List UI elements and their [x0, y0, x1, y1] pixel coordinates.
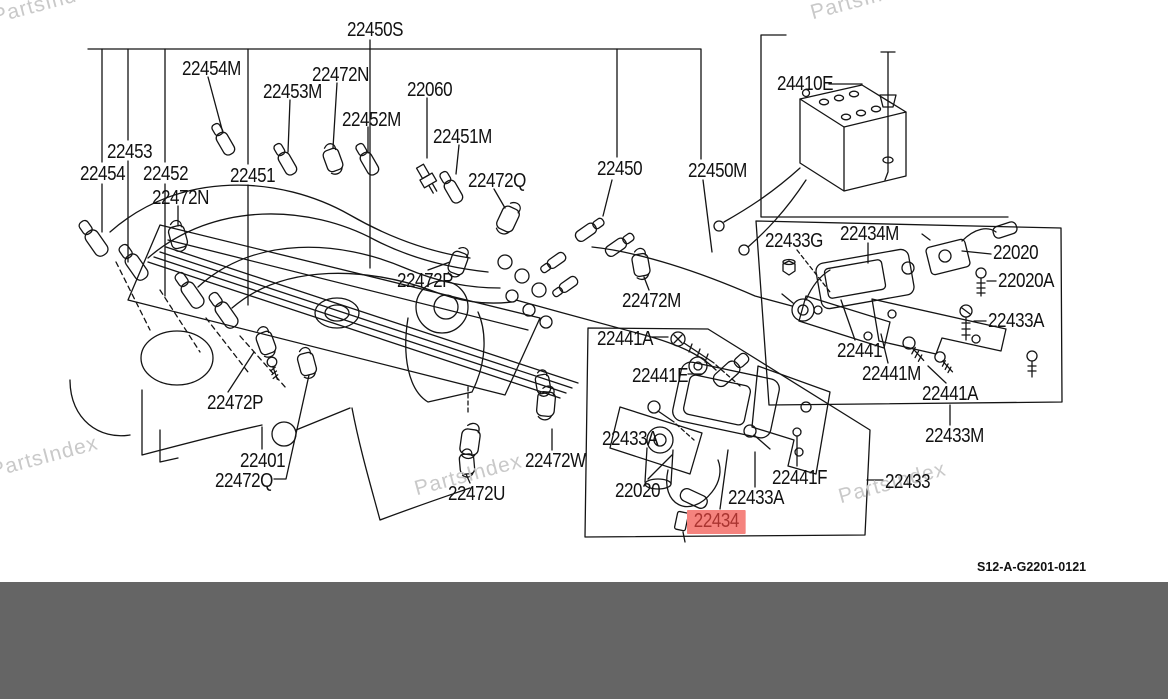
- part-label-22472W-31[interactable]: 22472W: [525, 451, 586, 472]
- part-label-24410E-15[interactable]: 24410E: [777, 74, 833, 95]
- part-label-22433M-29[interactable]: 22433M: [925, 426, 984, 447]
- parts-catalog-page: PartsIndexPartsIndexPartsIndexPartsIndex…: [0, 0, 1168, 699]
- diagram-artwork: [0, 0, 1168, 582]
- part-label-22433G-17[interactable]: 22433G: [765, 231, 823, 252]
- part-label-22453M-4[interactable]: 22453M: [263, 82, 322, 103]
- part-label-22401-32[interactable]: 22401: [240, 451, 285, 472]
- part-label-22441A-27[interactable]: 22441A: [922, 384, 978, 405]
- part-label-22433A-30[interactable]: 22433A: [602, 429, 658, 450]
- part-label-22451M-6[interactable]: 22451M: [433, 127, 492, 148]
- part-label-22472P-28[interactable]: 22472P: [207, 393, 263, 414]
- part-label-22020A-19[interactable]: 22020A: [998, 271, 1054, 292]
- part-label-22020-38[interactable]: 22020: [615, 481, 660, 502]
- part-label-22434-36[interactable]: 22434: [687, 510, 746, 534]
- part-label-22472N-14[interactable]: 22472N: [152, 188, 209, 209]
- footer-bar: NISSAN INFINITI - 2243312P00 N - 22434: [0, 582, 1168, 699]
- part-label-22441A-23[interactable]: 22441A: [597, 329, 653, 350]
- diagram-code: S12-A-G2201-0121: [977, 560, 1086, 574]
- part-label-22060-3[interactable]: 22060: [407, 80, 452, 101]
- part-label-22450-8[interactable]: 22450: [597, 159, 642, 180]
- part-label-22450S-0[interactable]: 22450S: [347, 20, 403, 41]
- part-label-22433A-39[interactable]: 22433A: [728, 488, 784, 509]
- part-label-22452-11[interactable]: 22452: [143, 164, 188, 185]
- part-label-22441F-34[interactable]: 22441F: [772, 468, 827, 489]
- part-label-22441E-26[interactable]: 22441E: [632, 366, 688, 387]
- part-label-22441-24[interactable]: 22441: [837, 341, 882, 362]
- part-label-22472M-20[interactable]: 22472M: [622, 291, 681, 312]
- part-label-22441M-25[interactable]: 22441M: [862, 364, 921, 385]
- part-label-22020-18[interactable]: 22020: [993, 243, 1038, 264]
- part-label-22433-35[interactable]: 22433: [885, 472, 930, 493]
- part-label-22472P-21[interactable]: 22472P: [397, 271, 453, 292]
- part-label-22453-7[interactable]: 22453: [107, 142, 152, 163]
- part-label-22472U-37[interactable]: 22472U: [448, 484, 505, 505]
- part-label-22433A-22[interactable]: 22433A: [988, 311, 1044, 332]
- part-label-22472Q-33[interactable]: 22472Q: [215, 471, 273, 492]
- part-label-22452M-5[interactable]: 22452M: [342, 110, 401, 131]
- part-label-22472Q-13[interactable]: 22472Q: [468, 171, 526, 192]
- part-label-22454M-1[interactable]: 22454M: [182, 59, 241, 80]
- part-label-22450M-9[interactable]: 22450M: [688, 161, 747, 182]
- part-label-22454-10[interactable]: 22454: [80, 164, 125, 185]
- part-label-22451-12[interactable]: 22451: [230, 166, 275, 187]
- part-label-22434M-16[interactable]: 22434M: [840, 224, 899, 245]
